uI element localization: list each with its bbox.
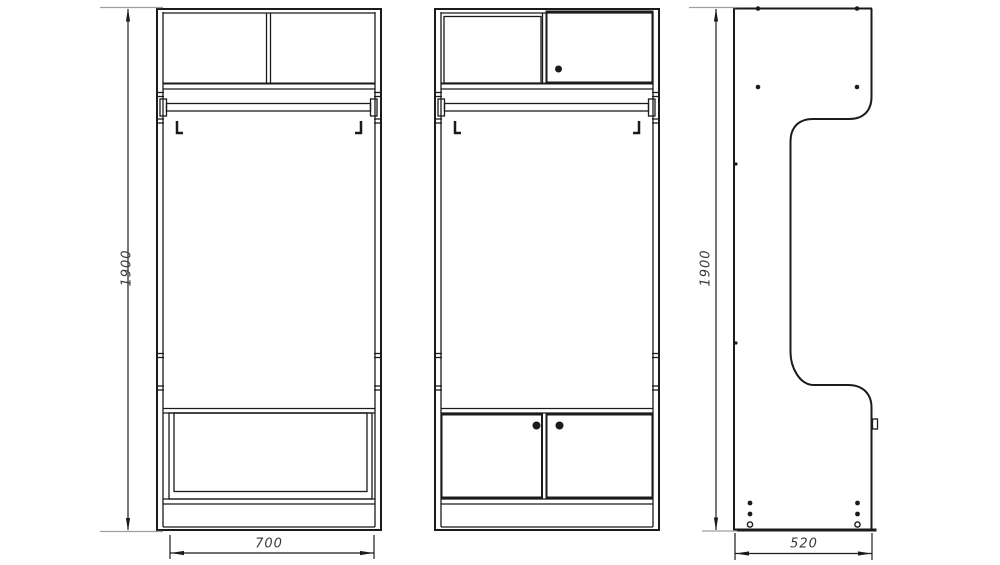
wardrobe-side-view xyxy=(733,6,878,531)
lower-door-left-knob xyxy=(533,422,541,430)
hole-bottom-left-1 xyxy=(748,501,753,506)
arrow-up xyxy=(126,9,130,22)
arrow-up xyxy=(714,9,718,22)
front-edge-fitting xyxy=(873,419,878,429)
front-height-label: 1900 xyxy=(120,249,135,286)
rod-bracket-right xyxy=(649,99,656,116)
wardrobe-front-open-view xyxy=(156,8,382,531)
upper-door xyxy=(547,12,653,83)
hole-bottom-left-3 xyxy=(747,522,752,527)
hole-bottom-right-2 xyxy=(855,512,860,517)
side-height-label: 1900 xyxy=(699,249,714,286)
hook-right xyxy=(633,121,639,133)
lower-door-left xyxy=(442,415,543,498)
upper-open-niche xyxy=(444,17,541,84)
wardrobe-front-doors-view xyxy=(434,8,660,531)
arrow-left xyxy=(171,551,185,555)
upper-door-knob xyxy=(555,66,562,73)
hole-bottom-right-3 xyxy=(855,522,860,527)
hole-bottom-left-2 xyxy=(748,512,753,517)
hook-right xyxy=(355,121,361,133)
arrow-left xyxy=(736,551,750,555)
hole-back-upper xyxy=(734,162,737,165)
rod-bracket-right xyxy=(371,99,378,116)
hole-top-right xyxy=(855,6,860,11)
hanging-rod xyxy=(445,104,649,112)
lower-box-opening xyxy=(169,413,372,499)
hole-bottom-right-1 xyxy=(855,501,860,506)
hook-left xyxy=(455,121,461,133)
hole-top-left xyxy=(756,6,761,11)
arrow-right xyxy=(858,551,872,555)
side-depth-label: 520 xyxy=(790,537,818,552)
arrow-right xyxy=(360,551,374,555)
lower-door-right-knob xyxy=(556,422,564,430)
drawing-canvas xyxy=(0,0,1000,565)
hole-shelf-left xyxy=(756,85,761,90)
arrow-down xyxy=(126,518,130,531)
hole-back-lower xyxy=(734,341,737,344)
front-width-label: 700 xyxy=(255,537,283,552)
arrow-down xyxy=(714,518,718,531)
hanging-rod xyxy=(167,104,371,112)
hole-shelf-right xyxy=(855,85,860,90)
hook-left xyxy=(177,121,183,133)
technical-drawing: 1900 700 1900 520 xyxy=(0,0,1000,565)
side-panel-curved-front-edge xyxy=(791,9,872,531)
